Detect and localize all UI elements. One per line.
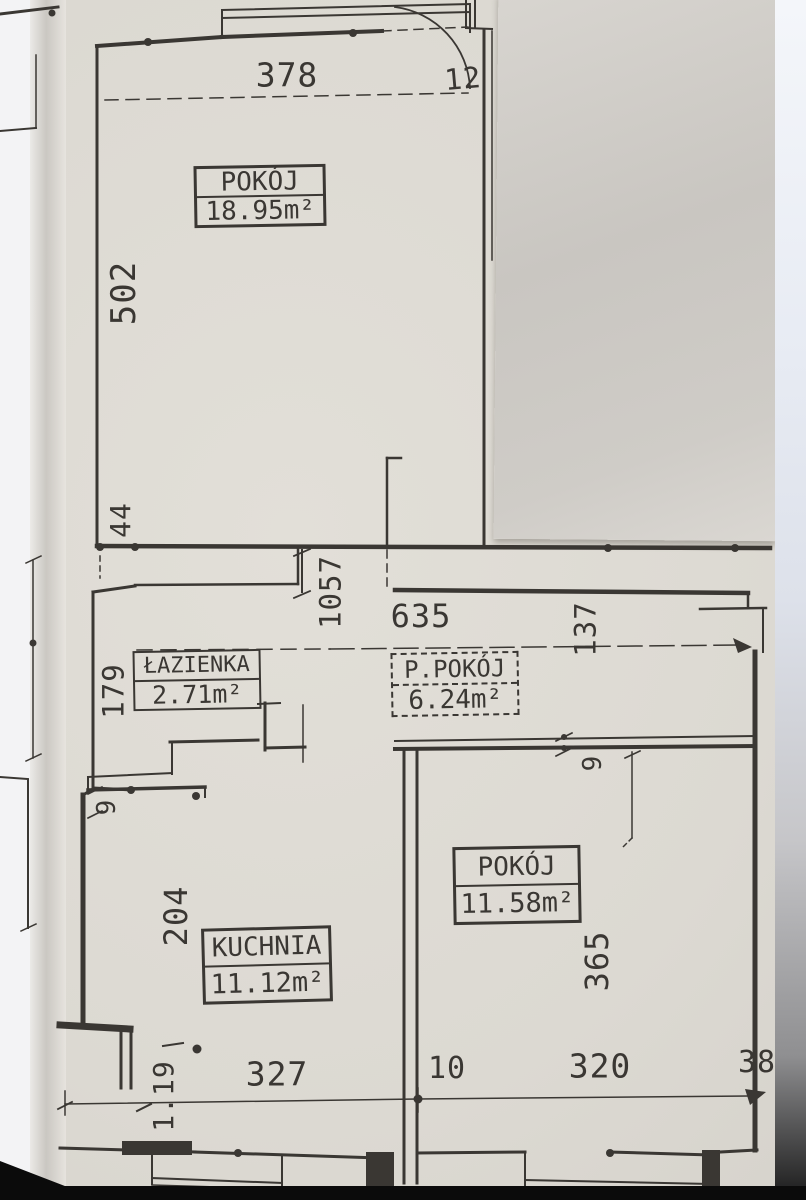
- door-opening: [382, 27, 468, 31]
- window-bottom-left: [152, 1178, 282, 1183]
- adjacent-structures: [0, 7, 58, 931]
- room-area: 11.58m²: [456, 885, 579, 922]
- dim-wall-thickness: 10: [428, 1054, 466, 1084]
- room-label-lazienka: ŁAZIENKA 2.71m²: [132, 649, 261, 711]
- room-area: 18.95m²: [197, 196, 323, 225]
- dim-room2-height: 365: [581, 931, 613, 992]
- dim-right-offset: 38: [738, 1048, 776, 1078]
- room-label-pokoj-large: POKÓJ 18.95m²: [193, 164, 326, 228]
- photo-background-right: [775, 0, 806, 1200]
- room-label-ppokoj: P.POKÓJ 6.24m²: [390, 651, 519, 717]
- dim-top-width: 378: [256, 59, 319, 92]
- room-area: 6.24m²: [393, 684, 517, 715]
- room-name: KUCHNIA: [204, 928, 329, 967]
- room-area: 11.12m²: [205, 964, 330, 1001]
- dim-room2-offset: 9: [580, 755, 606, 772]
- dim-top-door: 12: [443, 63, 482, 95]
- room-name: POKÓJ: [455, 848, 578, 887]
- room-name: POKÓJ: [197, 167, 323, 198]
- dim-left-height: 502: [107, 261, 141, 325]
- dim-kitchen-width: 327: [246, 1058, 309, 1091]
- room-label-kuchnia: KUCHNIA 11.12m²: [201, 925, 333, 1004]
- dim-corridor-right: 137: [572, 601, 601, 656]
- room-label-pokoj-small: POKÓJ 11.58m²: [452, 845, 581, 925]
- dim-left-offset: 44: [107, 502, 135, 538]
- dim-bathroom-offset: 9: [94, 799, 120, 816]
- floor-plan-photo: 378 12 635 327 10 320 38 502 44 1057 137…: [0, 0, 806, 1200]
- window-top-inner: [222, 12, 470, 18]
- room-area: 2.71m²: [135, 680, 259, 709]
- photo-black-edge: [0, 1186, 806, 1200]
- dim-bathroom-height: 179: [100, 663, 129, 718]
- dim-room2-width: 320: [569, 1050, 632, 1083]
- window-bottom-right: [525, 1180, 710, 1184]
- window-top-outer: [222, 4, 470, 10]
- room-name: P.POKÓJ: [392, 653, 517, 686]
- dim-bottom-left-wall: 1.19: [150, 1060, 178, 1131]
- dim-kitchen-height: 204: [160, 886, 192, 947]
- room-name: ŁAZIENKA: [135, 651, 259, 682]
- dim-arrowhead: [733, 638, 752, 653]
- folded-paper-overlay: [494, 0, 781, 541]
- dim-hall-depth: 1057: [317, 555, 346, 629]
- dim-corridor-width: 635: [391, 600, 452, 632]
